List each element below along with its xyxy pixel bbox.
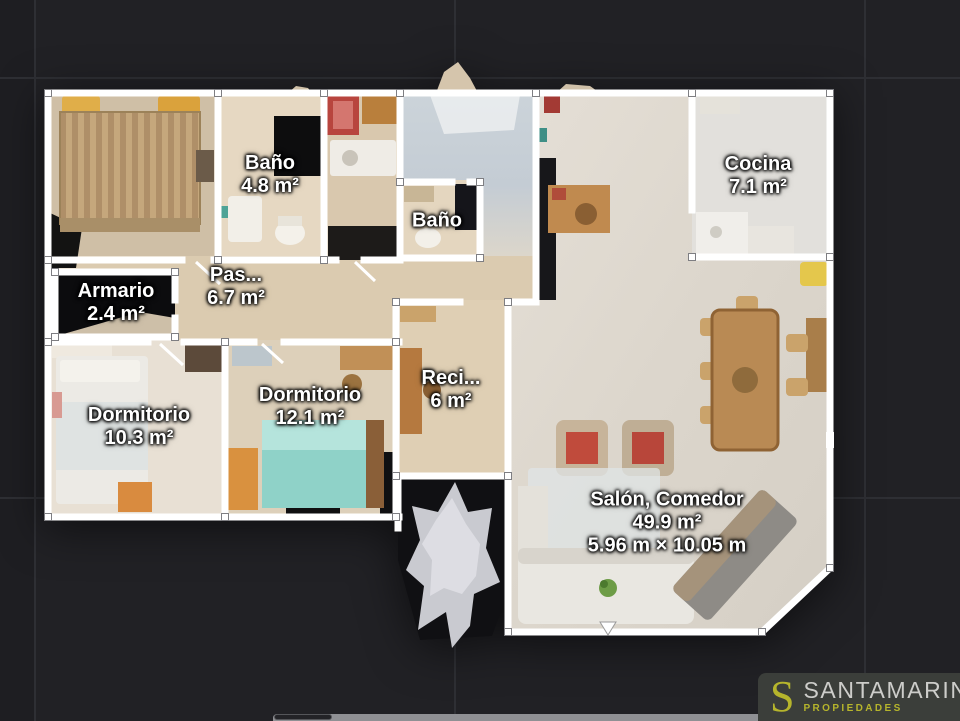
agency-logo: S SANTAMARINA PROPIEDADES xyxy=(758,673,960,721)
agency-name: SANTAMARINA xyxy=(803,679,960,702)
floor-plan-viewer: Baño 4.8 m² Baño Cocina 7.1 m² Armario 2… xyxy=(0,0,960,721)
scrubber-handle[interactable] xyxy=(274,714,332,720)
floor-plan[interactable] xyxy=(0,0,960,721)
agency-tagline: PROPIEDADES xyxy=(803,703,960,715)
agency-logo-initial: S xyxy=(770,677,794,717)
